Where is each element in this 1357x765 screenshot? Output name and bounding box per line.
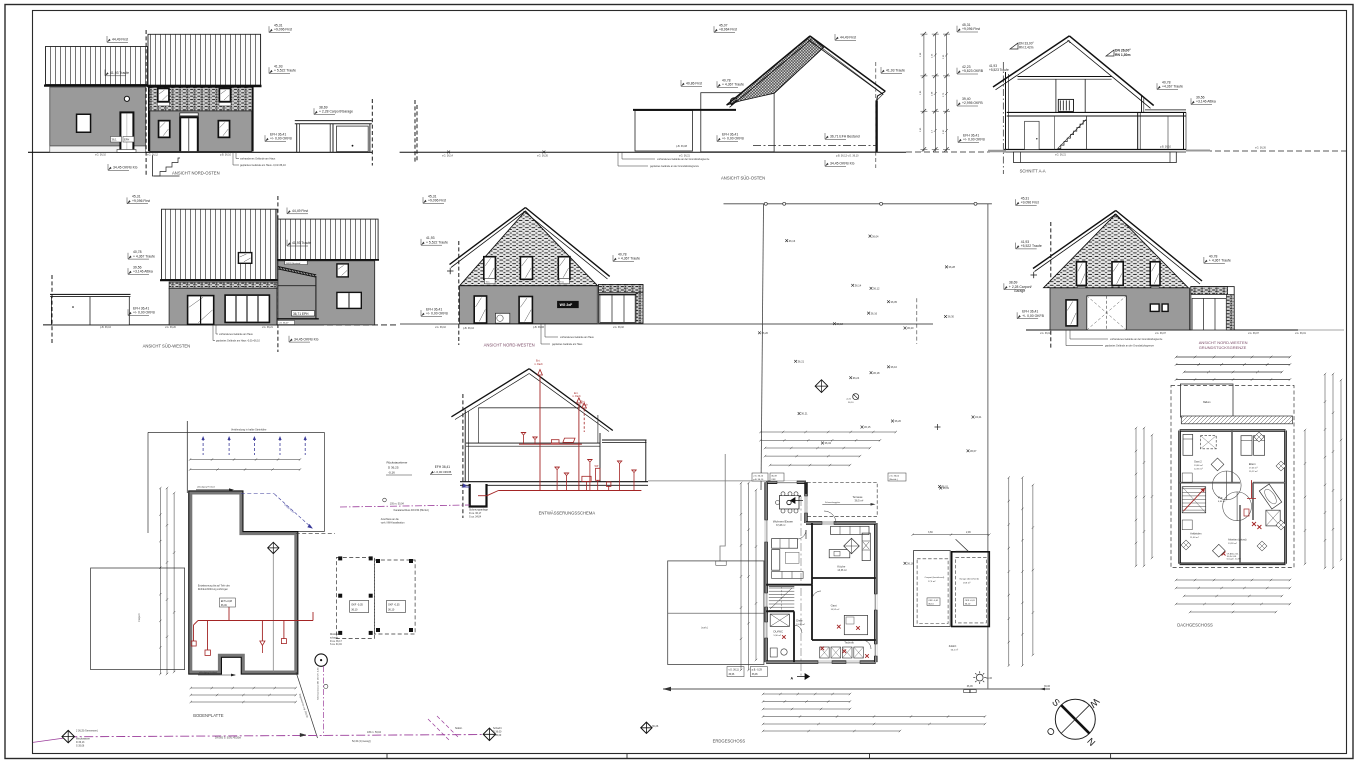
svg-text:Technik: Technik <box>844 641 854 645</box>
svg-text:13,36 m²: 13,36 m² <box>837 569 847 572</box>
svg-text:5,56 m²: 5,56 m² <box>774 634 782 637</box>
svg-text:3,66: 3,66 <box>928 531 933 534</box>
svg-text:34,45 OKFB KG: 34,45 OKFB KG <box>830 162 855 166</box>
svg-text:19,8 m²: 19,8 m² <box>963 581 971 584</box>
svg-text:36,24: 36,24 <box>853 376 860 380</box>
svg-text:36,16: 36,16 <box>789 239 796 243</box>
svg-text:36,05: 36,05 <box>891 300 898 304</box>
svg-text:v.G. 36,10: v.G. 36,10 <box>1040 332 1052 335</box>
svg-text:RN 2,42m: RN 2,42m <box>1019 46 1034 50</box>
svg-text:+ 2,28 Carport/Garage: + 2,28 Carport/Garage <box>319 110 353 114</box>
svg-text:17,06 m²: 17,06 m² <box>1249 467 1258 470</box>
svg-text:ENTWÄSSERUNGSSCHEMA: ENTWÄSSERUNGSSCHEMA <box>539 511 596 516</box>
svg-text:ERDGESCHOSS: ERDGESCHOSS <box>713 739 746 744</box>
svg-text:-0,16: -0,16 <box>388 471 395 475</box>
svg-text:+/- 0,00 OKFB: +/- 0,00 OKFB <box>1022 314 1045 318</box>
svg-text:ANSICHT NORD-OSTEN: ANSICHT NORD-OSTEN <box>172 171 220 176</box>
svg-text:EFH +0,08: EFH +0,08 <box>221 601 233 603</box>
svg-text:41,93 Traufe: 41,93 Traufe <box>110 71 129 75</box>
svg-text:36,10: 36,10 <box>965 603 971 605</box>
svg-text:v.G. 36,12: v.G. 36,12 <box>147 154 159 157</box>
svg-text:36,18: 36,18 <box>837 322 844 326</box>
svg-text:44,49 First: 44,49 First <box>840 36 856 40</box>
svg-text:p.B. 36,10: p.B. 36,10 <box>753 479 764 481</box>
svg-text:13,28 m²: 13,28 m² <box>1228 542 1237 545</box>
svg-text:GRUNDSTÜCKSGRENZE: GRUNDSTÜCKSGRENZE <box>1199 345 1247 350</box>
svg-text:36,18: 36,18 <box>873 371 880 375</box>
svg-text:Rückstauebene: Rückstauebene <box>387 461 408 465</box>
svg-text:+3,146 Attika: +3,146 Attika <box>1196 100 1216 104</box>
svg-text:+ 4,367 Traufe: + 4,367 Traufe <box>722 83 744 87</box>
svg-text:+/- 0,00 OKFB: +/- 0,00 OKFB <box>722 137 745 141</box>
svg-text:36,21: 36,21 <box>801 412 808 416</box>
svg-text:+/- 0,00 OKFB: +/- 0,00 OKFB <box>432 470 451 474</box>
svg-text:41,93 Traufe: 41,93 Traufe <box>886 69 905 73</box>
svg-text:36,1: 36,1 <box>112 138 118 142</box>
svg-text:Diele: Diele <box>796 619 803 623</box>
svg-text:37,28 m²: 37,28 m² <box>776 524 786 527</box>
svg-text:36,30: 36,30 <box>948 315 955 319</box>
svg-text:+ 4,367 Traufe: + 4,367 Traufe <box>133 254 155 258</box>
svg-text:36,20: 36,20 <box>907 326 914 330</box>
svg-text:S ca. 34,04: S ca. 34,04 <box>330 644 342 646</box>
svg-text:13,66 m²: 13,66 m² <box>1194 464 1203 467</box>
svg-text:34,45 OKFB KG: 34,45 OKFB KG <box>113 166 138 170</box>
svg-text:v.G. 36,26: v.G. 36,26 <box>537 155 549 158</box>
svg-text:BODENPLATTE: BODENPLATTE <box>193 713 224 718</box>
svg-text:WP: WP <box>595 465 599 468</box>
svg-text:36,14: 36,14 <box>855 284 862 288</box>
svg-text:ANSICHT NORD-WESTEN: ANSICHT NORD-WESTEN <box>484 343 535 348</box>
svg-text:DN26 Bestand: DN26 Bestand <box>286 262 301 265</box>
svg-text:36,71 EFH Bestand: 36,71 EFH Bestand <box>830 135 860 139</box>
svg-text:v.G. 36,07: v.G. 36,07 <box>279 323 290 325</box>
svg-text:Kanalanschluss DN 150 (PE-Sxt): Kanalanschluss DN 150 (PE-Sxt) <box>394 509 429 512</box>
svg-text:OKF -0,01: OKF -0,01 <box>928 600 939 602</box>
svg-text:36,10: 36,10 <box>848 402 854 404</box>
svg-text:36,10: 36,10 <box>928 603 934 605</box>
svg-text:Balkon: Balkon <box>1203 401 1211 404</box>
svg-text:p.B. 36,08: p.B. 36,08 <box>676 145 688 148</box>
svg-text:11,46 m²: 11,46 m² <box>1190 536 1199 539</box>
svg-text:v.G. 36,10: v.G. 36,10 <box>95 154 107 157</box>
svg-text:-0,31: -0,31 <box>846 399 852 401</box>
svg-text:OKF -0,35: OKF -0,35 <box>388 603 400 606</box>
svg-text:+2,995 OKFB: +2,995 OKFB <box>962 101 983 105</box>
svg-text:D 36,25: D 36,25 <box>388 466 399 470</box>
svg-text:+5,523 Traufe: +5,523 Traufe <box>989 68 1009 72</box>
svg-text:36,06: 36,06 <box>1044 685 1051 688</box>
svg-text:p.B. 36,12 v.G. 36,10: p.B. 36,12 v.G. 36,10 <box>836 155 859 158</box>
svg-text:DN 26,00°: DN 26,00° <box>1115 49 1131 53</box>
svg-text:Entwässerung bis auf Tiefe des: Entwässerung bis auf Tiefe des <box>198 585 231 588</box>
svg-text:36,10: 36,10 <box>891 365 898 369</box>
svg-text:14,52 m²: 14,52 m² <box>831 608 840 611</box>
svg-text:WG 2xF: WG 2xF <box>560 303 573 307</box>
svg-text:Terrasse: Terrasse <box>853 495 864 499</box>
svg-text:Eltern: Eltern <box>1249 462 1256 466</box>
svg-text:vorhandenes Gelände an der Gru: vorhandenes Gelände an der Grundstücksgr… <box>1110 338 1163 341</box>
svg-text:+ 5,522 Traufe: + 5,522 Traufe <box>426 240 448 244</box>
svg-text:ablaufgang Freiland: ablaufgang Freiland <box>197 487 215 489</box>
svg-text:36,20: 36,20 <box>895 419 902 423</box>
svg-text:v.G. 36,10: v.G. 36,10 <box>753 475 764 477</box>
svg-text:44,49 First: 44,49 First <box>112 38 128 42</box>
svg-text:+9,096 First: +9,096 First <box>428 199 446 203</box>
svg-text:Treppe: Treppe <box>240 285 248 288</box>
svg-text:40,86 First: 40,86 First <box>686 82 702 86</box>
svg-text:DU/WC: DU/WC <box>774 629 783 633</box>
svg-text:+9,096 First: +9,096 First <box>1021 201 1039 205</box>
svg-text:Wohnen/Essen: Wohnen/Essen <box>773 519 794 523</box>
svg-text:34,45 OKFB KG: 34,45 OKFB KG <box>294 337 319 341</box>
svg-text:p.B. 36,10: p.B. 36,10 <box>1160 146 1172 149</box>
svg-text:Gast: Gast <box>831 604 837 608</box>
svg-text:vorhandenes Gelände am Haus: vorhandenes Gelände am Haus <box>219 333 254 336</box>
svg-text:Gast 2: Gast 2 <box>1194 460 1202 464</box>
svg-text:Garage: Garage <box>1014 289 1025 293</box>
svg-text:v.G. 36,01: v.G. 36,01 <box>1295 332 1307 335</box>
svg-text:36,06: 36,06 <box>986 677 993 680</box>
svg-text:Schmutzwasser DN 150 2% 5,4m: Schmutzwasser DN 150 2% 5,4m <box>317 667 320 700</box>
svg-text:Küche: Küche <box>837 565 845 569</box>
svg-text:+5,522 Traufe: +5,522 Traufe <box>1021 244 1042 248</box>
svg-text:v.G. 36,07: v.G. 36,07 <box>1155 332 1167 335</box>
svg-text:41,93 Traufe: 41,93 Traufe <box>292 241 311 245</box>
svg-text:OKF -0,01: OKF -0,01 <box>965 600 976 602</box>
svg-text:DACHGESCHOSS: DACHGESCHOSS <box>1177 623 1213 628</box>
svg-text:geplantes Gelände am Haus: geplantes Gelände am Haus <box>552 343 583 346</box>
svg-text:v.G. 36,11: v.G. 36,11 <box>729 670 740 672</box>
svg-text:+/- 0,00 OKFB: +/- 0,00 OKFB <box>963 138 986 142</box>
svg-text:2,96: 2,96 <box>966 531 971 534</box>
svg-text:Ankleiden: Ankleiden <box>1190 532 1202 536</box>
svg-text:ANSICHT SÜD-OSTEN: ANSICHT SÜD-OSTEN <box>721 176 765 181</box>
svg-text:+ 4,367 Traufe: + 4,367 Traufe <box>1209 259 1231 263</box>
svg-text:+8,964 First: +8,964 First <box>719 28 737 32</box>
svg-text:Südstr.: Südstr. <box>455 727 463 730</box>
svg-text:36,5 m²: 36,5 m² <box>855 498 864 502</box>
svg-text:36,16: 36,16 <box>907 562 914 566</box>
svg-text:+ 5,522 Traufe: + 5,522 Traufe <box>274 69 296 73</box>
svg-text:12,36 m²: 12,36 m² <box>1194 467 1203 470</box>
svg-text:+5,823 OKRB: +5,823 OKRB <box>962 69 984 73</box>
svg-text:36,06: 36,06 <box>752 674 758 676</box>
svg-text:56,2 m²: 56,2 m² <box>951 649 959 652</box>
svg-text:A: A <box>799 495 802 499</box>
svg-text:ü. Dach: ü. Dach <box>535 363 544 366</box>
svg-text:36,16: 36,16 <box>871 311 878 315</box>
svg-text:36,34: 36,34 <box>825 441 832 445</box>
svg-text:105 m. 50,04: 105 m. 50,04 <box>390 503 405 506</box>
svg-text:geplantes Gelände am Haus -0,0: geplantes Gelände am Haus -0,01=36,10 <box>216 340 260 343</box>
svg-text:+/- 0,00 OKFB: +/- 0,00 OKFB <box>133 311 156 315</box>
svg-text:vorhandenes Gelände am Haus: vorhandenes Gelände am Haus <box>560 336 595 339</box>
svg-text:+ 4,367 Traufe: + 4,367 Traufe <box>618 257 640 261</box>
svg-text:v.G. 36,21: v.G. 36,21 <box>262 326 274 329</box>
svg-text:36,06: 36,06 <box>967 685 974 688</box>
svg-text:Schneefanggitter: Schneefanggitter <box>825 501 840 504</box>
svg-text:Zufahrt: Zufahrt <box>949 645 957 648</box>
svg-text:DN 500 S: 5,0‰ 45,50m: DN 500 S: 5,0‰ 45,50m <box>215 737 241 740</box>
svg-text:Flur: Flur <box>1218 496 1223 500</box>
svg-text:36,21: 36,21 <box>798 360 805 364</box>
svg-text:8,86 m²: 8,86 m² <box>1218 500 1226 503</box>
svg-text:bezugsh. mü.NN: bezugsh. mü.NN <box>1227 559 1242 561</box>
svg-text:Tres: Tres <box>486 282 490 284</box>
svg-text:Rückstau-: Rückstau- <box>330 633 341 636</box>
svg-text:17,6 m²: 17,6 m² <box>928 580 936 583</box>
svg-text:Arbeiten (privat): Arbeiten (privat) <box>1228 538 1247 542</box>
svg-text:+/- 0,00 OKFB: +/- 0,00 OKFB <box>426 312 449 316</box>
svg-text:36,71 EPH: 36,71 EPH <box>293 312 309 316</box>
svg-text:(vorh.): (vorh.) <box>701 627 708 630</box>
svg-text:v.G. 36,07: v.G. 36,07 <box>1248 332 1260 335</box>
svg-text:Garage (bestehend): Garage (bestehend) <box>959 578 979 581</box>
svg-text:ANSICHT SÜD-WESTEN: ANSICHT SÜD-WESTEN <box>143 344 191 349</box>
svg-text:S 35,06: S 35,06 <box>76 745 85 748</box>
svg-text:vorhandenes Gelände am Haus: vorhandenes Gelände am Haus <box>240 158 276 161</box>
svg-text:v.G. 36,26: v.G. 36,26 <box>1255 147 1267 150</box>
svg-text:Rohrdurchführung vorbringen: Rohrdurchführung vorbringen <box>198 588 229 591</box>
svg-text:105 m. 53,04: 105 m. 53,04 <box>367 731 382 734</box>
svg-text:Carport (bestehend): Carport (bestehend) <box>925 576 945 579</box>
svg-text:36,28: 36,28 <box>949 265 956 269</box>
svg-text:geplantes Gelände am Haus -0,0: geplantes Gelände am Haus -0,01=36,10 <box>240 164 286 167</box>
svg-text:RN 1,30m: RN 1,30m <box>1115 53 1130 57</box>
svg-text:p.B. -0,29: p.B. -0,29 <box>752 670 763 672</box>
svg-text:(Nachb.): (Nachb.) <box>889 479 898 481</box>
svg-text:OKF -0,35: OKF -0,35 <box>351 603 363 606</box>
svg-text:+/- 0,00 OKFB: +/- 0,00 OKFB <box>270 137 293 141</box>
svg-text:OKF: OKF <box>771 479 776 481</box>
svg-text:+4,367 Traufe: +4,367 Traufe <box>1162 85 1183 89</box>
svg-text:D ca. 36,17: D ca. 36,17 <box>330 641 342 643</box>
svg-text:v.G. 36,10: v.G. 36,10 <box>435 326 447 329</box>
svg-text:v.G. 36,14: v.G. 36,14 <box>442 155 454 158</box>
svg-text:p.B. 36,10: p.B. 36,10 <box>100 326 112 329</box>
svg-text:+9,096 First: +9,096 First <box>962 27 980 31</box>
svg-text:geplantes Gelände an der Grund: geplantes Gelände an der Grundstücksgren… <box>1105 345 1155 348</box>
svg-text:Verblendung in halbe Steinhöhe: Verblendung in halbe Steinhöhe <box>231 429 267 432</box>
svg-text:36,07: 36,07 <box>970 449 977 453</box>
svg-text:v.G. 36,02: v.G. 36,02 <box>613 326 625 329</box>
svg-text:44,49 First: 44,49 First <box>292 209 308 213</box>
svg-text:ü. Dach: ü. Dach <box>580 404 589 407</box>
svg-text:SCHNITT A-A: SCHNITT A-A <box>1020 169 1046 174</box>
svg-text:2 36,25 (Vermesser): 2 36,25 (Vermesser) <box>76 730 98 733</box>
svg-text:geplantes Gelände an der Grund: geplantes Gelände an der Grundstücksgren… <box>650 165 700 168</box>
svg-text:34,21: 34,21 <box>975 415 982 419</box>
svg-text:36,01: 36,01 <box>942 485 949 489</box>
svg-text:v.G. 36,21: v.G. 36,21 <box>1055 154 1067 157</box>
svg-text:36,04: 36,04 <box>872 234 879 238</box>
svg-text:36,15: 36,15 <box>864 425 871 429</box>
svg-text:vorh. NW-Kanalisation: vorh. NW-Kanalisation <box>381 521 405 524</box>
svg-text:v.G. 36,20: v.G. 36,20 <box>165 326 177 329</box>
svg-text:36,10: 36,10 <box>388 608 395 611</box>
svg-text:EFH: EFH <box>124 138 129 142</box>
svg-text:S 35,00: S 35,00 <box>493 734 502 737</box>
svg-text:p.B. 36,10: p.B. 36,10 <box>220 154 232 157</box>
svg-text:36,12: 36,12 <box>873 287 880 291</box>
svg-text:vorhandenes Gelände an der Gru: vorhandenes Gelände an der Grundstücksgr… <box>657 158 710 161</box>
svg-text:p.B. 36,06: p.B. 36,06 <box>533 326 545 329</box>
svg-text:36,06: 36,06 <box>729 674 735 676</box>
svg-text:schacht: schacht <box>330 636 338 639</box>
svg-text:36,20: 36,20 <box>762 331 769 335</box>
svg-text:p.B. 36,10: p.B. 36,10 <box>463 327 475 330</box>
svg-text:36,10: 36,10 <box>351 608 358 611</box>
svg-text:36,49: 36,49 <box>221 605 227 607</box>
svg-text:EFH 36,41: EFH 36,41 <box>435 465 450 469</box>
svg-text:Tres: Tres <box>560 282 564 284</box>
svg-text:S ca. 34,04: S ca. 34,04 <box>469 516 482 519</box>
svg-text:15,12 m²: 15,12 m² <box>1249 470 1258 473</box>
svg-text:36,49: 36,49 <box>771 475 777 477</box>
svg-text:36,26: 36,26 <box>652 725 659 728</box>
svg-text:52,34 (4 (messy)): 52,34 (4 (messy)) <box>352 740 371 743</box>
svg-text:v.G. 36,02: v.G. 36,02 <box>889 475 900 477</box>
svg-text:+9,096 First: +9,096 First <box>132 199 150 203</box>
svg-text:+9,096 First: +9,096 First <box>274 28 292 32</box>
svg-text:ablaufgang Freiland: ablaufgang Freiland <box>199 672 217 674</box>
svg-text:A: A <box>791 677 794 681</box>
svg-text:+3,146 Attika: +3,146 Attika <box>133 270 153 274</box>
svg-text:ü. Dach: ü. Dach <box>573 395 582 398</box>
svg-text:Carport: Carport <box>137 613 141 622</box>
